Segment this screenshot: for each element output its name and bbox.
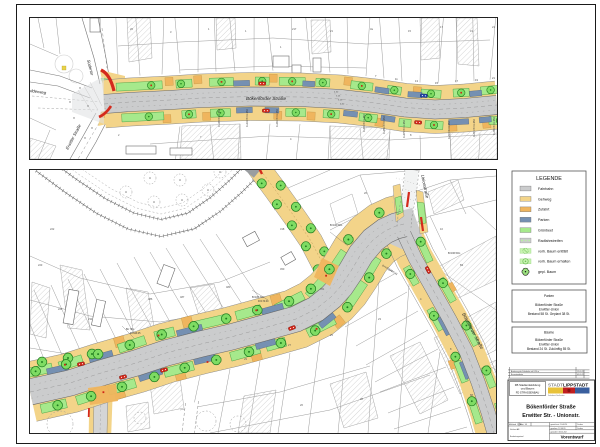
- svg-text:12.01.21: 12.01.21: [577, 371, 584, 373]
- svg-text:487: 487: [180, 295, 185, 299]
- svg-text:Bökenförder Straße: Bökenförder Straße: [535, 338, 563, 342]
- svg-text:B=166.50m: B=166.50m: [448, 252, 460, 255]
- svg-text:Parken: Parken: [544, 294, 554, 298]
- svg-text:451: 451: [320, 287, 325, 291]
- svg-text:Erwitter-Union: Erwitter-Union: [539, 343, 559, 347]
- svg-text:Blatt 1/4: Blatt 1/4: [520, 423, 527, 426]
- svg-text:Bökenförder Straße: Bökenförder Straße: [526, 405, 576, 411]
- svg-text:Bestand 24 St. Zukünftig 55 St: Bestand 24 St. Zukünftig 55 St.: [527, 347, 571, 351]
- svg-text:223: 223: [38, 263, 43, 267]
- svg-text:Bökenförder Straße: Bökenförder Straße: [246, 96, 287, 101]
- svg-text:Parken: Parken: [538, 218, 549, 222]
- svg-text:4: 4: [290, 137, 292, 141]
- svg-text:0+465 B=41.650: 0+465 B=41.650: [493, 117, 496, 135]
- svg-text:26: 26: [300, 403, 303, 407]
- svg-text:Südertor: Südertor: [86, 59, 95, 76]
- svg-text:0+218 B=41.650: 0+218 B=41.650: [246, 109, 249, 127]
- svg-text:Bestand 58 St. Geplant 38 St.: Bestand 58 St. Geplant 38 St.: [528, 312, 570, 316]
- svg-text:1: 1: [208, 27, 210, 31]
- svg-text:23: 23: [378, 317, 381, 321]
- svg-text:geändert 08.12.202: geändert 08.12.202: [551, 430, 567, 433]
- svg-text:13: 13: [415, 79, 418, 83]
- svg-text:D=372.21: D=372.21: [388, 268, 399, 276]
- svg-text:0+445 B=41.650: 0+445 B=41.650: [473, 119, 476, 137]
- svg-text:231: 231: [88, 317, 93, 321]
- svg-text:224: 224: [58, 307, 63, 311]
- svg-text:FD STRASSENBAU: FD STRASSENBAU: [516, 391, 540, 395]
- svg-text:1: 1: [245, 29, 247, 33]
- svg-text:Fahrbahn: Fahrbahn: [538, 187, 553, 191]
- svg-text:gezeichnet 10.06.20: gezeichnet 10.06.20: [551, 423, 568, 426]
- svg-text:1: 1: [280, 45, 282, 49]
- svg-text:Verfasst AB: Verfasst AB: [510, 428, 520, 431]
- svg-text:8: 8: [410, 133, 412, 137]
- svg-text:318: 318: [280, 227, 285, 231]
- svg-text:vorh. Baum entfällt: vorh. Baum entfällt: [538, 249, 568, 253]
- svg-text:Bü 70m: Bü 70m: [126, 328, 134, 331]
- svg-text:Änderung der Fahrbahn auf 6.50: Änderung der Fahrbahn auf 6.50 m: [511, 370, 540, 373]
- svg-text:10: 10: [440, 227, 443, 231]
- svg-text:B=106.50m: B=106.50m: [330, 224, 342, 227]
- svg-text:7: 7: [375, 74, 377, 78]
- svg-text:0+375 B=41.650: 0+375 B=41.650: [403, 120, 406, 138]
- svg-text:Erwitter Str. - Unionstr.: Erwitter Str. - Unionstr.: [522, 413, 580, 419]
- svg-text:450: 450: [280, 267, 285, 271]
- svg-text:Zufahrt: Zufahrt: [538, 208, 549, 212]
- svg-text:STADT: STADT: [548, 383, 563, 388]
- svg-text:217: 217: [292, 27, 297, 31]
- svg-text:17: 17: [455, 79, 458, 83]
- svg-text:0+190 B=41.650: 0+190 B=41.650: [218, 109, 221, 127]
- svg-text:0+355 B=41.650: 0+355 B=41.650: [383, 116, 386, 134]
- svg-text:und Bauen: und Bauen: [521, 387, 535, 391]
- svg-text:21: 21: [330, 29, 333, 33]
- svg-text:480: 480: [226, 285, 231, 289]
- svg-text:gepl. Baum: gepl. Baum: [538, 270, 556, 274]
- svg-text:19: 19: [475, 78, 478, 82]
- svg-text:Cordes: Cordes: [577, 428, 583, 430]
- svg-text:Bäume: Bäume: [544, 331, 554, 335]
- svg-text:15: 15: [408, 29, 411, 33]
- svg-text:Cordes: Cordes: [577, 424, 583, 426]
- svg-text:vorh. Baum erhalten: vorh. Baum erhalten: [538, 260, 570, 264]
- svg-text:Radfahrstreifen: Radfahrstreifen: [538, 239, 563, 243]
- svg-text:26: 26: [364, 191, 367, 195]
- svg-text:LEGENDE: LEGENDE: [536, 176, 562, 182]
- svg-text:LIPPSTADT: LIPPSTADT: [563, 383, 588, 388]
- svg-text:486: 486: [148, 297, 153, 301]
- svg-text:D=343.05: D=343.05: [130, 332, 141, 335]
- svg-text:Erwitter Straße: Erwitter Straße: [64, 123, 82, 151]
- svg-text:Gehweg: Gehweg: [538, 197, 551, 201]
- svg-text:222: 222: [50, 227, 55, 231]
- svg-text:Grünbeet: Grünbeet: [538, 229, 553, 233]
- svg-text:B2: B2: [460, 263, 464, 267]
- svg-text:0+248 B=41.650: 0+248 B=41.650: [276, 109, 279, 127]
- svg-text:gesehen 12.06.20: gesehen 12.06.20: [551, 428, 566, 430]
- svg-text:0+420 B=41.650: 0+420 B=41.650: [448, 121, 451, 139]
- svg-text:3a: 3a: [370, 27, 373, 31]
- svg-text:D=174.00: D=174.00: [258, 300, 269, 303]
- svg-text:3: 3: [170, 30, 172, 34]
- svg-text:Erwitter-Union: Erwitter-Union: [539, 308, 559, 312]
- svg-text:Bökenförder Straße: Bökenförder Straße: [535, 303, 563, 307]
- svg-text:21: 21: [492, 76, 495, 80]
- svg-text:05.01.21: 05.01.21: [577, 374, 584, 376]
- svg-text:dderweg: dderweg: [30, 88, 47, 95]
- svg-text:0+335 B=41.650: 0+335 B=41.650: [363, 114, 366, 132]
- svg-text:11: 11: [395, 77, 398, 81]
- svg-text:Vorentwurf: Vorentwurf: [561, 435, 584, 440]
- svg-text:2: 2: [118, 133, 120, 137]
- svg-text:Baumstandorte: Baumstandorte: [511, 373, 523, 376]
